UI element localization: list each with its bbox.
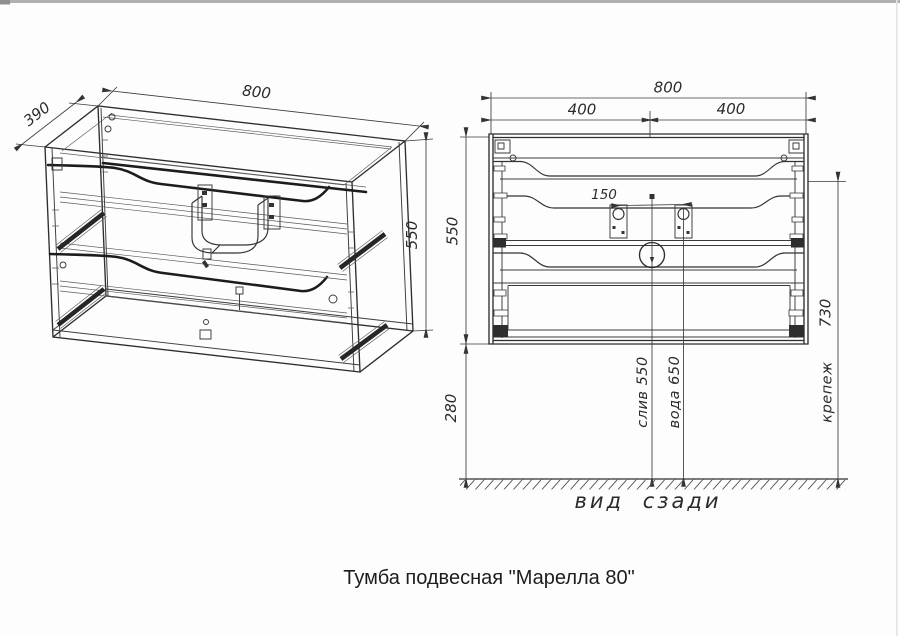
rear-drawer-back-waves — [493, 162, 804, 268]
rear-side-tabs — [494, 166, 803, 316]
rear-frame — [489, 134, 808, 344]
rear-horizontal-members — [493, 158, 804, 338]
iso-screw-2 — [105, 126, 111, 132]
rear-dim-clearance: 280 — [442, 394, 460, 423]
rear-view-title: вид сзади — [575, 489, 722, 513]
technical-drawing: 800 390 550 800 400 400 150 — [0, 0, 900, 636]
iso-dim-width: 800 — [241, 81, 271, 102]
iso-cutout-screws — [202, 191, 274, 268]
rear-dim-fastener-height: 730 — [817, 299, 835, 328]
rear-dim-overall: 800 — [654, 79, 683, 97]
iso-corner-posts — [52, 108, 407, 372]
iso-cabinet-box — [45, 106, 413, 372]
rear-dim-height: 550 — [444, 217, 462, 246]
rear-mount-screw-dots — [613, 226, 690, 234]
rear-corner-brackets — [495, 140, 804, 153]
rear-dim-right-half: 400 — [717, 100, 746, 118]
water-label: вода 650 — [667, 356, 683, 429]
rear-dim-left-half: 400 — [568, 101, 597, 119]
rear-slide-blocks — [493, 238, 804, 337]
rear-view: 800 400 400 150 550 280 730 слив 550 вод… — [442, 79, 846, 479]
drawing-caption: Тумба подвесная "Марелла 80" — [343, 567, 634, 589]
iso-dim-extension-lines — [16, 87, 433, 331]
rear-dim-extension-lines — [460, 92, 846, 344]
rear-dim-bracket-spacing: 150 — [591, 187, 617, 203]
iso-cam-lock — [329, 295, 337, 303]
iso-screw-4 — [204, 320, 209, 325]
scan-edge-top-left — [0, 0, 10, 5]
scan-edge-right — [896, 0, 898, 636]
fastener-label: крепеж — [820, 361, 836, 422]
iso-dim-height: 550 — [403, 221, 421, 250]
ground — [459, 479, 848, 489]
iso-screw-3 — [60, 262, 66, 268]
rear-mount-keyhole-left — [613, 209, 624, 220]
scan-edge-top — [0, 0, 900, 3]
isometric-view: 800 390 550 — [16, 81, 433, 372]
rear-dim-bracket-line — [621, 205, 682, 206]
iso-dim-depth: 390 — [20, 98, 54, 130]
ground-hatching — [460, 480, 846, 490]
drain-label: слив 550 — [635, 356, 651, 428]
iso-fittings — [52, 158, 243, 339]
